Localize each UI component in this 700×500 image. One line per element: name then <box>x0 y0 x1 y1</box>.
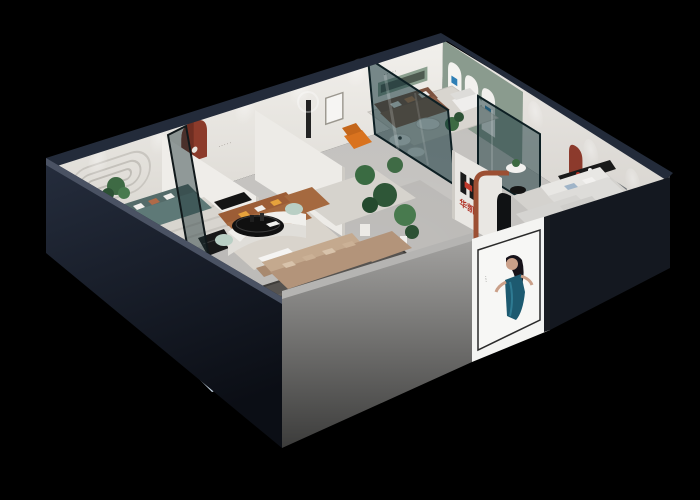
garden-plant <box>362 197 378 213</box>
floor-lamp-sculpture <box>306 100 311 138</box>
oval-dining-table <box>232 215 284 237</box>
showroom-scene: ····· ····· <box>0 0 700 500</box>
poster-caption: ···· <box>482 276 488 283</box>
plant <box>118 187 130 199</box>
logo-wall-edge <box>452 150 455 220</box>
side-table-black <box>510 186 526 194</box>
mint-chair <box>285 203 303 215</box>
garden-plant <box>387 157 403 173</box>
garden-plant <box>405 225 419 239</box>
table-decor-vase <box>260 213 264 221</box>
poster-wall-edge-dark <box>544 215 550 332</box>
white-planter <box>360 224 370 236</box>
garden-plant <box>394 204 416 226</box>
garden-plant <box>355 165 375 185</box>
mint-chair <box>215 234 233 246</box>
showroom-render-svg: ····· ····· <box>0 0 700 500</box>
plant <box>512 159 520 167</box>
poster-model-head <box>506 258 518 270</box>
picture-frame <box>326 93 343 125</box>
table-decor-vase <box>250 215 254 222</box>
plant <box>454 112 464 122</box>
